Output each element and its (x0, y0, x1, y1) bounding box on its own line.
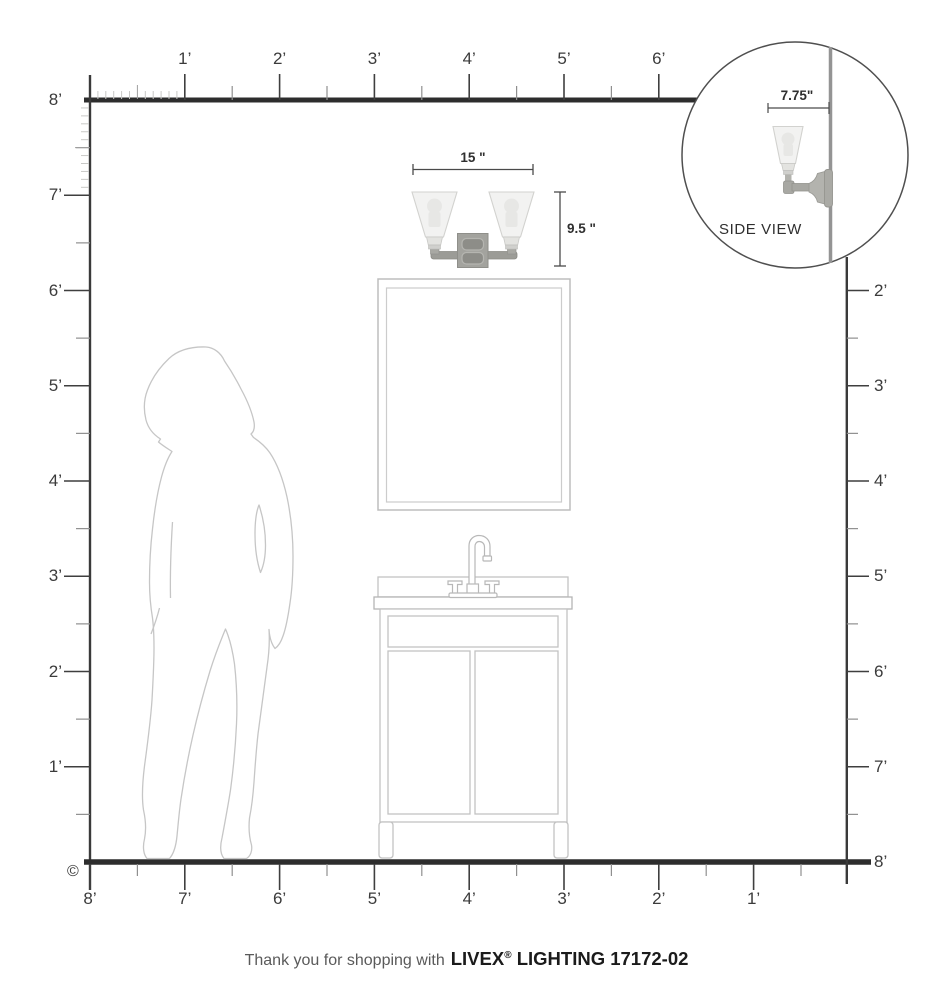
cabinet-door-left (388, 651, 470, 814)
registered-mark: ® (504, 950, 511, 961)
socket-ring-left (429, 245, 441, 249)
mirror-inner-frame (387, 288, 562, 502)
footer-caption: Thank you for shopping withLIVEX® LIGHTI… (0, 944, 933, 973)
dimension-diagram: 15 " 9.5 " 7.75" SIDE VIEW 8’ © 1’2’3’4’… (0, 0, 933, 1000)
socket-ring-side (784, 171, 794, 175)
socket-left (427, 237, 443, 245)
arm-side (792, 184, 810, 192)
cabinet-leg-left (379, 822, 393, 858)
socket-right (504, 237, 520, 245)
countertop (374, 597, 572, 609)
footer-thankyou-text: Thank you for shopping with (245, 952, 445, 969)
backplate-detail-bottom (462, 253, 484, 265)
mirror (378, 279, 570, 510)
faucet (448, 536, 499, 598)
glass-shade-right (489, 192, 534, 237)
brand-livex: LIVEX (451, 948, 504, 969)
drawer-panel (388, 616, 558, 647)
diagram-artwork (0, 0, 933, 1000)
faucet-escutcheon (449, 593, 497, 598)
brand-name: LIVEX® LIGHTING 17172-02 (451, 948, 689, 969)
vanity-light-fixture (412, 192, 534, 268)
wall-plate-side (825, 170, 833, 208)
cabinet-leg-right (554, 822, 568, 858)
vanity-cabinet (374, 577, 572, 858)
side-view-inset (682, 42, 908, 268)
silhouette-outline (142, 347, 293, 859)
product-number: LIGHTING 17172-02 (512, 948, 689, 969)
glass-shade-left (412, 192, 457, 237)
faucet-body (467, 584, 479, 594)
socket-ring-right (506, 245, 518, 249)
faucet-nozzle (483, 556, 492, 561)
backplate-detail-top (462, 239, 484, 251)
socket-side (782, 164, 796, 171)
cabinet-door-right (475, 651, 558, 814)
human-scale-silhouette (142, 347, 293, 859)
